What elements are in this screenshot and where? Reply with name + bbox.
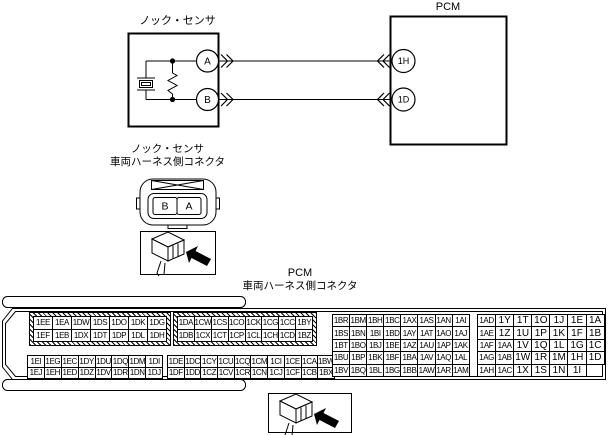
pin-row: 1BS1BN1BI1BD1AY1AT1AO1AJ <box>332 326 470 339</box>
pin-1I: 1I <box>567 364 586 377</box>
terminal-label-b: B <box>204 95 211 106</box>
pin-1AT: 1AT <box>417 326 435 339</box>
pin-1D: 1D <box>586 351 605 364</box>
pin-1EB: 1EB <box>52 329 72 343</box>
pin-1E: 1E <box>567 314 586 327</box>
pin-1BS: 1BS <box>332 326 350 339</box>
pin-1W: 1W <box>513 351 532 364</box>
pin-1DP: 1DP <box>109 329 129 343</box>
inline-connector-chevrons-sensor <box>221 55 233 107</box>
pin-1Y: 1Y <box>495 314 514 327</box>
wiring-diagram-page: { "colors": {"line": "#000000", "backgro… <box>0 0 609 435</box>
pin-1EE: 1EE <box>33 316 53 330</box>
pin-row: 1EF1EB1DX1DT1DP1DL1DH <box>33 329 167 343</box>
pin-1BH: 1BH <box>366 314 384 327</box>
pcm-connector-top-tab <box>3 297 246 308</box>
pcm-box <box>391 17 507 145</box>
pin-1DT: 1DT <box>90 329 110 343</box>
pin-1R: 1R <box>531 351 550 364</box>
pin-1AE: 1AE <box>477 326 496 339</box>
pin-1U: 1U <box>513 326 532 339</box>
pin-1BM: 1BM <box>349 314 367 327</box>
pcm-title: PCM <box>400 1 496 14</box>
pin-1N: 1N <box>549 364 568 377</box>
pin-1BC: 1BC <box>383 314 401 327</box>
pin-1F: 1F <box>567 326 586 339</box>
pin-1H: 1H <box>567 351 586 364</box>
pin-1ED: 1ED <box>61 367 79 380</box>
pin-1S: 1S <box>531 364 550 377</box>
pin-grid: 1EI1EG1EC1DY1DU1DQ1DM1DI1EJ1EH1ED1DZ1DV1… <box>27 355 163 379</box>
pin-1CT: 1CT <box>211 329 229 343</box>
pin-1AJ: 1AJ <box>452 326 470 339</box>
pin-1AL: 1AL <box>452 351 470 364</box>
pin-1AW: 1AW <box>417 364 435 377</box>
pin-1DL: 1DL <box>128 329 148 343</box>
connector-with-arrow-icon <box>280 394 339 435</box>
pin-1AY: 1AY <box>400 326 418 339</box>
pin-1AF: 1AF <box>477 339 496 352</box>
pin-1M: 1M <box>549 351 568 364</box>
pin-1BV: 1BV <box>332 364 350 377</box>
pin-1T: 1T <box>513 314 532 327</box>
pin-1AD: 1AD <box>477 314 496 327</box>
pin-1AV: 1AV <box>417 351 435 364</box>
pin-1DZ: 1DZ <box>78 367 96 380</box>
pcm-pin-block-bottom-left: 1EI1EG1EC1DY1DU1DQ1DM1DI1EJ1EH1ED1DZ1DV1… <box>27 355 163 379</box>
pin-1DS: 1DS <box>90 316 110 330</box>
pin-1BF: 1BF <box>383 351 401 364</box>
pin-1BQ: 1BQ <box>349 364 367 377</box>
pin-1CH: 1CH <box>261 329 279 343</box>
pin-grid: 1DA1CW1CS1CO1CK1CG1CC1BY1DB1CX1CT1CP1CL1… <box>177 316 313 342</box>
pin-1AZ: 1AZ <box>400 339 418 352</box>
pin-1CK: 1CK <box>245 316 263 330</box>
pin-1CF: 1CF <box>284 367 302 380</box>
pin-1P: 1P <box>531 326 550 339</box>
pin-1BB: 1BB <box>400 364 418 377</box>
connector-with-arrow-icon <box>152 232 211 276</box>
pin-1CB: 1CB <box>301 367 319 380</box>
connector-face-pin-a: A <box>185 201 192 213</box>
pin-1AO: 1AO <box>435 326 453 339</box>
pin-1AI: 1AI <box>452 314 470 327</box>
pcm-connector-title: PCM 車両ハーネス側コネクタ <box>220 267 380 293</box>
pin-1AR: 1AR <box>435 364 453 377</box>
pin-1CR: 1CR <box>234 367 252 380</box>
pin-1AH: 1AH <box>477 364 496 377</box>
piezo-element-icon <box>137 61 155 100</box>
pin-grid: 1DE1DC1CY1CU1CQ1CM1CI1CE1CA1BW1DF1DD1CZ1… <box>167 355 335 379</box>
pin-1B: 1B <box>586 326 605 339</box>
pin-1A: 1A <box>586 314 605 327</box>
pin-1DR: 1DR <box>111 367 129 380</box>
pin-1AB: 1AB <box>495 351 514 364</box>
pin-1AU: 1AU <box>417 339 435 352</box>
pin-1DA: 1DA <box>177 316 195 330</box>
pin-1C: 1C <box>586 339 605 352</box>
pin-1CS: 1CS <box>211 316 229 330</box>
pin-1G: 1G <box>567 339 586 352</box>
pin-1BI: 1BI <box>366 326 384 339</box>
pin-row: 1BV1BQ1BL1BG1BB1AW1AR1AM <box>332 364 470 377</box>
pcm-connector-title-line1: PCM <box>220 267 380 280</box>
sensor-connector-title: ノック・センサ 車両ハーネス側コネクタ <box>85 143 250 169</box>
pin-1EJ: 1EJ <box>27 367 45 380</box>
pin-grid: 1EE1EA1DW1DS1DO1DK1DG1EF1EB1DX1DT1DP1DL1… <box>33 316 167 342</box>
pin-1AS: 1AS <box>417 314 435 327</box>
pin-1BK: 1BK <box>366 351 384 364</box>
pin-1BA: 1BA <box>400 351 418 364</box>
pin-1DG: 1DG <box>147 316 167 330</box>
pin-1CP: 1CP <box>228 329 246 343</box>
pin-1DJ: 1DJ <box>145 367 163 380</box>
pcm-connector-title-line2: 車両ハーネス側コネクタ <box>220 280 380 293</box>
pin-1AQ: 1AQ <box>435 351 453 364</box>
sensor-connector-face <box>137 179 220 229</box>
pin-1CW: 1CW <box>194 316 212 330</box>
pin-1EF: 1EF <box>33 329 53 343</box>
pin-1BD: 1BD <box>383 326 401 339</box>
pcm-pin-block-right-mid: 1BR1BM1BH1BC1AX1AS1AN1AI1BS1BN1BI1BD1AY1… <box>332 314 470 377</box>
pin-1AK: 1AK <box>452 339 470 352</box>
pin-1BP: 1BP <box>349 351 367 364</box>
pin-1CX: 1CX <box>194 329 212 343</box>
pin-row: 1BT1BO1BJ1BE1AZ1AU1AP1AK <box>332 339 470 352</box>
pin-1CG: 1CG <box>261 316 279 330</box>
pcm-pin-block-top-left: 1EE1EA1DW1DS1DO1DK1DG1EF1EB1DX1DT1DP1DL1… <box>29 312 171 346</box>
pcm-connector-bottom-tab <box>3 380 246 391</box>
pin-grid: 1AD1Y1T1O1J1E1A1AE1Z1U1P1K1F1B1AF1AA1V1Q… <box>477 314 605 377</box>
pin-1BU: 1BU <box>332 351 350 364</box>
pin-1BY: 1BY <box>295 316 313 330</box>
pcm-pin-block-top-mid: 1DA1CW1CS1CO1CK1CG1CC1BY1DB1CX1CT1CP1CL1… <box>173 312 317 346</box>
pin-1EH: 1EH <box>44 367 62 380</box>
pin-1BJ: 1BJ <box>366 339 384 352</box>
pin-1AM: 1AM <box>452 364 470 377</box>
pin-1DX: 1DX <box>71 329 91 343</box>
pcm-pin-block-bottom-mid: 1DE1DC1CY1CU1CQ1CM1CI1CE1CA1BW1DF1DD1CZ1… <box>167 355 335 379</box>
pin-1CN: 1CN <box>250 367 268 380</box>
pin-1J: 1J <box>549 314 568 327</box>
pin-row: 1AG1AB1W1R1M1H1D <box>477 351 605 364</box>
junction-dot-bottom <box>170 97 175 102</box>
pin-1AC: 1AC <box>495 364 514 377</box>
pin-1DH: 1DH <box>147 329 167 343</box>
junction-dot-top <box>170 58 175 63</box>
sensor-connector-title-line1: ノック・センサ <box>85 143 250 156</box>
connector-face-pin-b: B <box>161 201 168 213</box>
pin-1DN: 1DN <box>128 367 146 380</box>
pin-1L: 1L <box>549 339 568 352</box>
resistor-icon <box>168 61 177 100</box>
pin-1DV: 1DV <box>95 367 113 380</box>
pcm-pin-block-right: 1AD1Y1T1O1J1E1A1AE1Z1U1P1K1F1B1AF1AA1V1Q… <box>477 314 605 377</box>
pin-grid: 1BR1BM1BH1BC1AX1AS1AN1AI1BS1BN1BI1BD1AY1… <box>332 314 470 377</box>
pin-1Q: 1Q <box>531 339 550 352</box>
pin-1AG: 1AG <box>477 351 496 364</box>
pin-row: 1AD1Y1T1O1J1E1A <box>477 314 605 327</box>
pin-1DO: 1DO <box>109 316 129 330</box>
pin-1EA: 1EA <box>52 316 72 330</box>
pin-1DW: 1DW <box>71 316 91 330</box>
pin-1CJ: 1CJ <box>267 367 285 380</box>
pin-1V: 1V <box>513 339 532 352</box>
pin-1DD: 1DD <box>184 367 202 380</box>
pin-1CC: 1CC <box>278 316 296 330</box>
pin-row: 1DF1DD1CZ1CV1CR1CN1CJ1CF1CB1BX <box>167 367 335 380</box>
terminal-label-1d: 1D <box>398 95 410 105</box>
pin-1DF: 1DF <box>167 367 185 380</box>
pin-row: 1BU1BP1BK1BF1BA1AV1AQ1AL <box>332 351 470 364</box>
pin-1BE: 1BE <box>383 339 401 352</box>
terminal-label-a: A <box>204 57 211 68</box>
pin-1AA: 1AA <box>495 339 514 352</box>
pin-row: 1DB1CX1CT1CP1CL1CH1CD1BZ <box>177 329 313 343</box>
pin-row: 1DA1CW1CS1CO1CK1CG1CC1BY <box>177 316 313 330</box>
pin-1BG: 1BG <box>383 364 401 377</box>
pin-1AP: 1AP <box>435 339 453 352</box>
sensor-connector-title-line2: 車両ハーネス側コネクタ <box>85 156 250 169</box>
pin-1AX: 1AX <box>400 314 418 327</box>
pin-1BN: 1BN <box>349 326 367 339</box>
pin-1DB: 1DB <box>177 329 195 343</box>
pin-1Z: 1Z <box>495 326 514 339</box>
pin-1CZ: 1CZ <box>200 367 218 380</box>
pin-1BL: 1BL <box>366 364 384 377</box>
pin-1X: 1X <box>513 364 532 377</box>
pin-1DK: 1DK <box>128 316 148 330</box>
pin-1CV: 1CV <box>217 367 235 380</box>
pin-1BO: 1BO <box>349 339 367 352</box>
pin-row: 1AH1AC1X1S1N1I <box>477 364 605 377</box>
pin-1BT: 1BT <box>332 339 350 352</box>
pin-1O: 1O <box>531 314 550 327</box>
pin-row: 1EE1EA1DW1DS1DO1DK1DG <box>33 316 167 330</box>
knock-sensor-title: ノック・センサ <box>120 15 235 28</box>
pin-row: 1AE1Z1U1P1K1F1B <box>477 326 605 339</box>
inline-connector-chevrons-pcm <box>378 55 390 107</box>
pin-1BR: 1BR <box>332 314 350 327</box>
pin-1CL: 1CL <box>245 329 263 343</box>
pin-row: 1BR1BM1BH1BC1AX1AS1AN1AI <box>332 314 470 327</box>
pin-1CO: 1CO <box>228 316 246 330</box>
pin-1K: 1K <box>549 326 568 339</box>
pin-1AN: 1AN <box>435 314 453 327</box>
pin-row: 1EJ1EH1ED1DZ1DV1DR1DN1DJ <box>27 367 163 380</box>
pin-1CD: 1CD <box>278 329 296 343</box>
pin-row: 1AF1AA1V1Q1L1G1C <box>477 339 605 352</box>
pin-1BZ: 1BZ <box>295 329 313 343</box>
terminal-label-1h: 1H <box>398 56 410 66</box>
